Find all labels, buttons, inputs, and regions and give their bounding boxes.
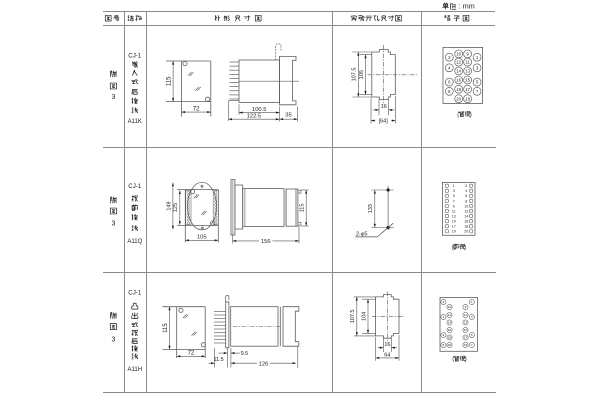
svg-text:): ) xyxy=(470,112,472,118)
svg-text:19: 19 xyxy=(465,96,470,101)
svg-text:16: 16 xyxy=(456,78,461,83)
svg-text:115: 115 xyxy=(300,204,306,213)
svg-text:6: 6 xyxy=(448,80,451,85)
svg-text:11: 11 xyxy=(452,209,456,213)
svg-text:8: 8 xyxy=(465,199,467,203)
svg-text:105: 105 xyxy=(359,70,365,79)
svg-text:CJ-1: CJ-1 xyxy=(128,289,142,296)
svg-text:3: 3 xyxy=(476,65,479,70)
svg-text:16: 16 xyxy=(381,104,387,110)
svg-text:2: 2 xyxy=(448,55,451,60)
svg-text:16: 16 xyxy=(384,342,390,348)
svg-text:13: 13 xyxy=(464,321,468,325)
svg-text:7: 7 xyxy=(476,89,479,94)
svg-text:100.5: 100.5 xyxy=(252,107,267,113)
svg-text:14: 14 xyxy=(464,214,468,218)
svg-text:2: 2 xyxy=(465,184,467,188)
svg-text:3: 3 xyxy=(111,221,115,228)
svg-text:17: 17 xyxy=(464,336,468,340)
svg-text:115: 115 xyxy=(167,76,173,86)
svg-text:18: 18 xyxy=(464,225,468,229)
svg-text::: : xyxy=(458,4,460,11)
svg-text:7: 7 xyxy=(471,343,473,347)
svg-text:20: 20 xyxy=(464,230,468,234)
svg-text:3: 3 xyxy=(111,336,115,343)
svg-text:15: 15 xyxy=(452,219,456,223)
svg-text:18: 18 xyxy=(448,336,452,340)
svg-text:9: 9 xyxy=(465,305,467,309)
svg-text:156: 156 xyxy=(261,239,271,245)
svg-text:1: 1 xyxy=(476,55,479,60)
svg-text:12: 12 xyxy=(456,60,461,65)
svg-text:4: 4 xyxy=(443,315,445,319)
svg-text:18: 18 xyxy=(456,87,461,92)
svg-text:CJ-1: CJ-1 xyxy=(128,183,142,190)
svg-text:3: 3 xyxy=(471,315,473,319)
svg-text:(: ( xyxy=(457,112,459,118)
svg-text:104: 104 xyxy=(361,312,367,321)
svg-text:17: 17 xyxy=(465,87,470,92)
svg-text:122.5: 122.5 xyxy=(247,114,262,120)
svg-text:35: 35 xyxy=(285,112,291,118)
svg-text:11: 11 xyxy=(464,313,467,317)
svg-text:10: 10 xyxy=(448,305,452,309)
svg-text:(: ( xyxy=(452,245,454,251)
svg-text:5: 5 xyxy=(453,194,455,198)
svg-text:72: 72 xyxy=(188,351,195,357)
svg-text:A11Q: A11Q xyxy=(127,239,142,245)
svg-text:125: 125 xyxy=(173,203,179,212)
svg-text:): ) xyxy=(464,245,466,251)
svg-text:5: 5 xyxy=(471,333,473,337)
svg-text:1: 1 xyxy=(471,300,473,304)
svg-text:19: 19 xyxy=(452,230,456,234)
svg-text:11.5: 11.5 xyxy=(213,357,223,363)
svg-text:3: 3 xyxy=(111,94,115,101)
svg-text:16: 16 xyxy=(464,219,468,223)
svg-text:8: 8 xyxy=(443,343,445,347)
svg-text:12: 12 xyxy=(464,209,468,213)
svg-text:A11K: A11K xyxy=(128,119,142,125)
svg-text:20: 20 xyxy=(448,343,452,347)
svg-text:CJ-1: CJ-1 xyxy=(128,53,142,60)
svg-text:1: 1 xyxy=(453,184,455,188)
svg-text:10: 10 xyxy=(464,204,468,208)
svg-text:19: 19 xyxy=(464,343,468,347)
svg-text:A11H: A11H xyxy=(128,367,143,373)
svg-text:17: 17 xyxy=(452,225,456,229)
svg-text:9.5: 9.5 xyxy=(241,351,249,357)
svg-text:3: 3 xyxy=(453,189,455,193)
svg-text:16: 16 xyxy=(448,328,452,332)
svg-text:13: 13 xyxy=(465,69,470,74)
svg-text:9: 9 xyxy=(453,204,455,208)
svg-text:9: 9 xyxy=(466,51,469,56)
svg-text:149: 149 xyxy=(166,201,172,210)
svg-text:105: 105 xyxy=(197,235,207,241)
svg-text:15: 15 xyxy=(464,328,468,332)
svg-text:15: 15 xyxy=(465,78,470,83)
svg-text:12: 12 xyxy=(448,313,452,317)
svg-text:7: 7 xyxy=(453,199,455,203)
svg-text:107.5: 107.5 xyxy=(352,68,358,82)
svg-text:11: 11 xyxy=(465,60,470,65)
svg-text:126: 126 xyxy=(259,361,269,367)
svg-text:5: 5 xyxy=(476,80,479,85)
svg-text:14: 14 xyxy=(456,69,461,74)
svg-text:10: 10 xyxy=(456,51,461,56)
svg-text:2: 2 xyxy=(443,300,445,304)
svg-text:mm: mm xyxy=(463,2,475,11)
svg-text:20: 20 xyxy=(456,96,461,101)
svg-text:6: 6 xyxy=(443,333,445,337)
svg-text:13: 13 xyxy=(452,214,456,218)
svg-text:(: ( xyxy=(452,357,454,363)
svg-text:6: 6 xyxy=(465,194,467,198)
svg-text:72: 72 xyxy=(193,107,200,113)
svg-text:133: 133 xyxy=(368,204,374,213)
svg-text:[64]: [64] xyxy=(379,119,389,125)
svg-text:2-φ5: 2-φ5 xyxy=(356,231,368,237)
svg-text:107.5: 107.5 xyxy=(350,310,356,324)
svg-text:64: 64 xyxy=(384,352,390,358)
svg-text:4: 4 xyxy=(448,65,451,70)
svg-text:): ) xyxy=(465,357,467,363)
svg-text:4: 4 xyxy=(465,189,467,193)
svg-text:14: 14 xyxy=(448,321,452,325)
svg-text:8: 8 xyxy=(448,89,451,94)
svg-text:115: 115 xyxy=(163,323,169,333)
